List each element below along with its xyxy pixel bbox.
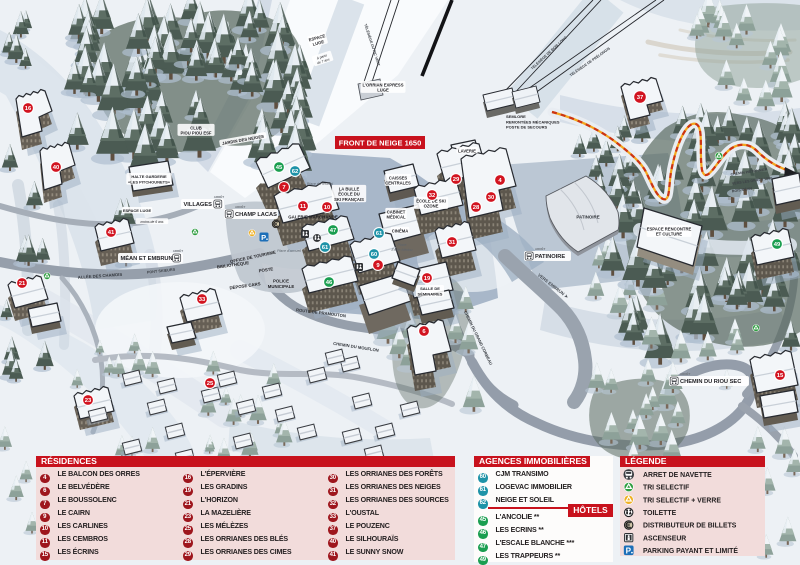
svg-text:31: 31	[449, 240, 456, 246]
svg-text:62: 62	[292, 169, 299, 175]
svg-text:HALTE GARDERIE«LES PITCHOUNETS: HALTE GARDERIE«LES PITCHOUNETS»	[128, 174, 171, 184]
svg-text:46: 46	[326, 280, 333, 286]
svg-text:29: 29	[453, 177, 460, 183]
svg-text:CAISSESCENTRALES: CAISSESCENTRALES	[385, 175, 411, 185]
svg-text:VILLAGES: VILLAGES	[184, 202, 213, 208]
svg-text:PATINOIRE: PATINOIRE	[576, 214, 599, 219]
svg-text:CABINETMÉDICAL: CABINETMÉDICAL	[386, 209, 406, 219]
svg-text:10: 10	[324, 205, 331, 211]
svg-text:LAVERIE: LAVERIE	[458, 148, 476, 153]
svg-text:Place d'accueil: Place d'accueil	[277, 249, 301, 253]
svg-text:19: 19	[424, 276, 431, 282]
svg-text:TRI SELECTIF: TRI SELECTIF	[643, 485, 689, 492]
svg-text:47: 47	[330, 228, 337, 234]
svg-text:61: 61	[322, 245, 329, 251]
svg-text:16: 16	[25, 106, 32, 112]
svg-text:ARRÊT: ARRÊT	[535, 246, 546, 251]
svg-text:TRI SELECTIF + VERRE: TRI SELECTIF + VERRE	[643, 497, 721, 504]
svg-text:PARKING PAYANT ET LIMITÉ: PARKING PAYANT ET LIMITÉ	[643, 546, 738, 555]
svg-text:49: 49	[774, 242, 781, 248]
svg-text:45: 45	[276, 165, 283, 171]
svg-text:11: 11	[300, 204, 307, 210]
svg-text:ARRET DE NAVETTE: ARRET DE NAVETTE	[643, 472, 712, 479]
svg-text:PATINOIRE: PATINOIRE	[535, 254, 565, 260]
svg-text:15: 15	[777, 373, 784, 379]
svg-text:ARRÊT: ARRÊT	[173, 248, 184, 253]
svg-text:ARRÊT: ARRÊT	[214, 194, 225, 199]
svg-text:32: 32	[429, 193, 436, 199]
svg-text:ASCENSEUR: ASCENSEUR	[643, 535, 686, 542]
svg-text:Place du festival: Place du festival	[307, 182, 333, 186]
svg-text:37: 37	[637, 95, 644, 101]
svg-text:SALLE DESÉMINAIRES: SALLE DESÉMINAIRES	[418, 286, 443, 296]
svg-text:41: 41	[108, 230, 115, 236]
svg-text:CHEMIN DU RIOU SEC: CHEMIN DU RIOU SEC	[680, 379, 741, 385]
svg-text:FRONT DE NEIGE 1650: FRONT DE NEIGE 1650	[339, 139, 422, 148]
svg-text:moins de 6 ans: moins de 6 ans	[141, 220, 164, 224]
svg-text:ARRÊT: ARRÊT	[235, 204, 246, 209]
svg-text:ARRÊT: ARRÊT	[680, 371, 691, 376]
svg-text:DISTRIBUTEUR DE BILLETS: DISTRIBUTEUR DE BILLETS	[643, 523, 737, 530]
svg-text:CHAMP LACAS: CHAMP LACAS	[235, 212, 277, 218]
svg-text:25: 25	[207, 381, 214, 387]
svg-text:MÉAN ET EMBRUN: MÉAN ET EMBRUN	[121, 254, 173, 262]
svg-text:60: 60	[371, 252, 378, 258]
svg-text:40: 40	[53, 165, 60, 171]
svg-text:23: 23	[85, 398, 92, 404]
svg-text:TOILETTE: TOILETTE	[643, 510, 677, 517]
svg-text:28: 28	[473, 205, 480, 211]
svg-text:GALERIE MARCHANDE: GALERIE MARCHANDE	[288, 214, 338, 219]
svg-text:CINÉMA: CINÉMA	[392, 228, 409, 233]
svg-text:ESPACE LUGE: ESPACE LUGE	[123, 208, 152, 213]
svg-text:30: 30	[488, 195, 495, 201]
svg-text:33: 33	[199, 297, 206, 303]
svg-text:21: 21	[19, 281, 26, 287]
svg-text:61: 61	[376, 231, 383, 237]
